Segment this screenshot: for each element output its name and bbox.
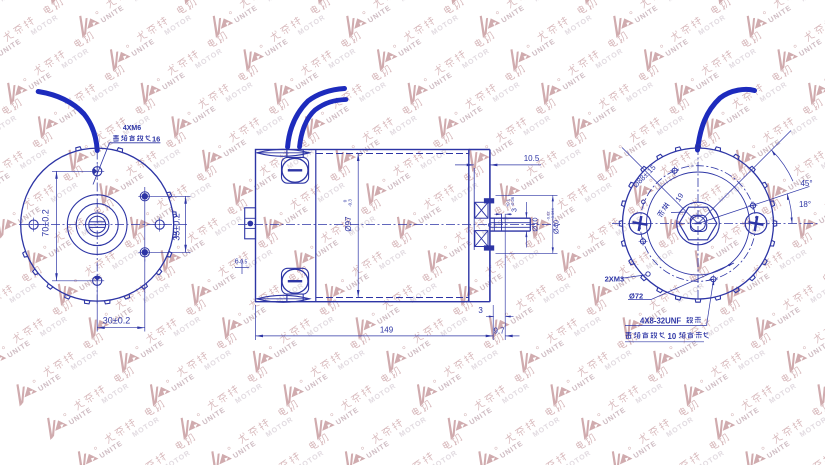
svg-text:30±0.2: 30±0.2 (103, 316, 130, 326)
svg-text:4X8-32UNF: 4X8-32UNF (640, 317, 681, 326)
svg-text:-0.3: -0.3 (348, 199, 353, 207)
svg-text:3: 3 (478, 306, 483, 315)
svg-text:Ø97: Ø97 (344, 216, 353, 232)
svg-text:2XM3: 2XM3 (605, 274, 625, 283)
svg-text:6-0.5: 6-0.5 (235, 259, 248, 266)
svg-text:-0.06: -0.06 (510, 196, 515, 206)
svg-text:10.5: 10.5 (524, 154, 540, 163)
svg-text:18°: 18° (799, 200, 811, 209)
svg-text:4XM6: 4XM6 (123, 125, 141, 132)
svg-text:9.7: 9.7 (493, 327, 505, 336)
svg-text:Ø72: Ø72 (629, 291, 643, 300)
svg-text:70±0.2: 70±0.2 (41, 209, 51, 236)
svg-text:45°: 45° (800, 179, 812, 188)
svg-text:149: 149 (380, 326, 394, 335)
svg-text:16: 16 (152, 134, 160, 143)
svg-text:-0.064: -0.064 (550, 208, 555, 220)
svg-text:3: 3 (512, 208, 519, 212)
svg-text:Ø40: Ø40 (552, 220, 561, 234)
svg-text:10: 10 (668, 332, 677, 341)
svg-text:Ø10: Ø10 (531, 217, 540, 231)
svg-text:35±0.2: 35±0.2 (172, 213, 182, 240)
